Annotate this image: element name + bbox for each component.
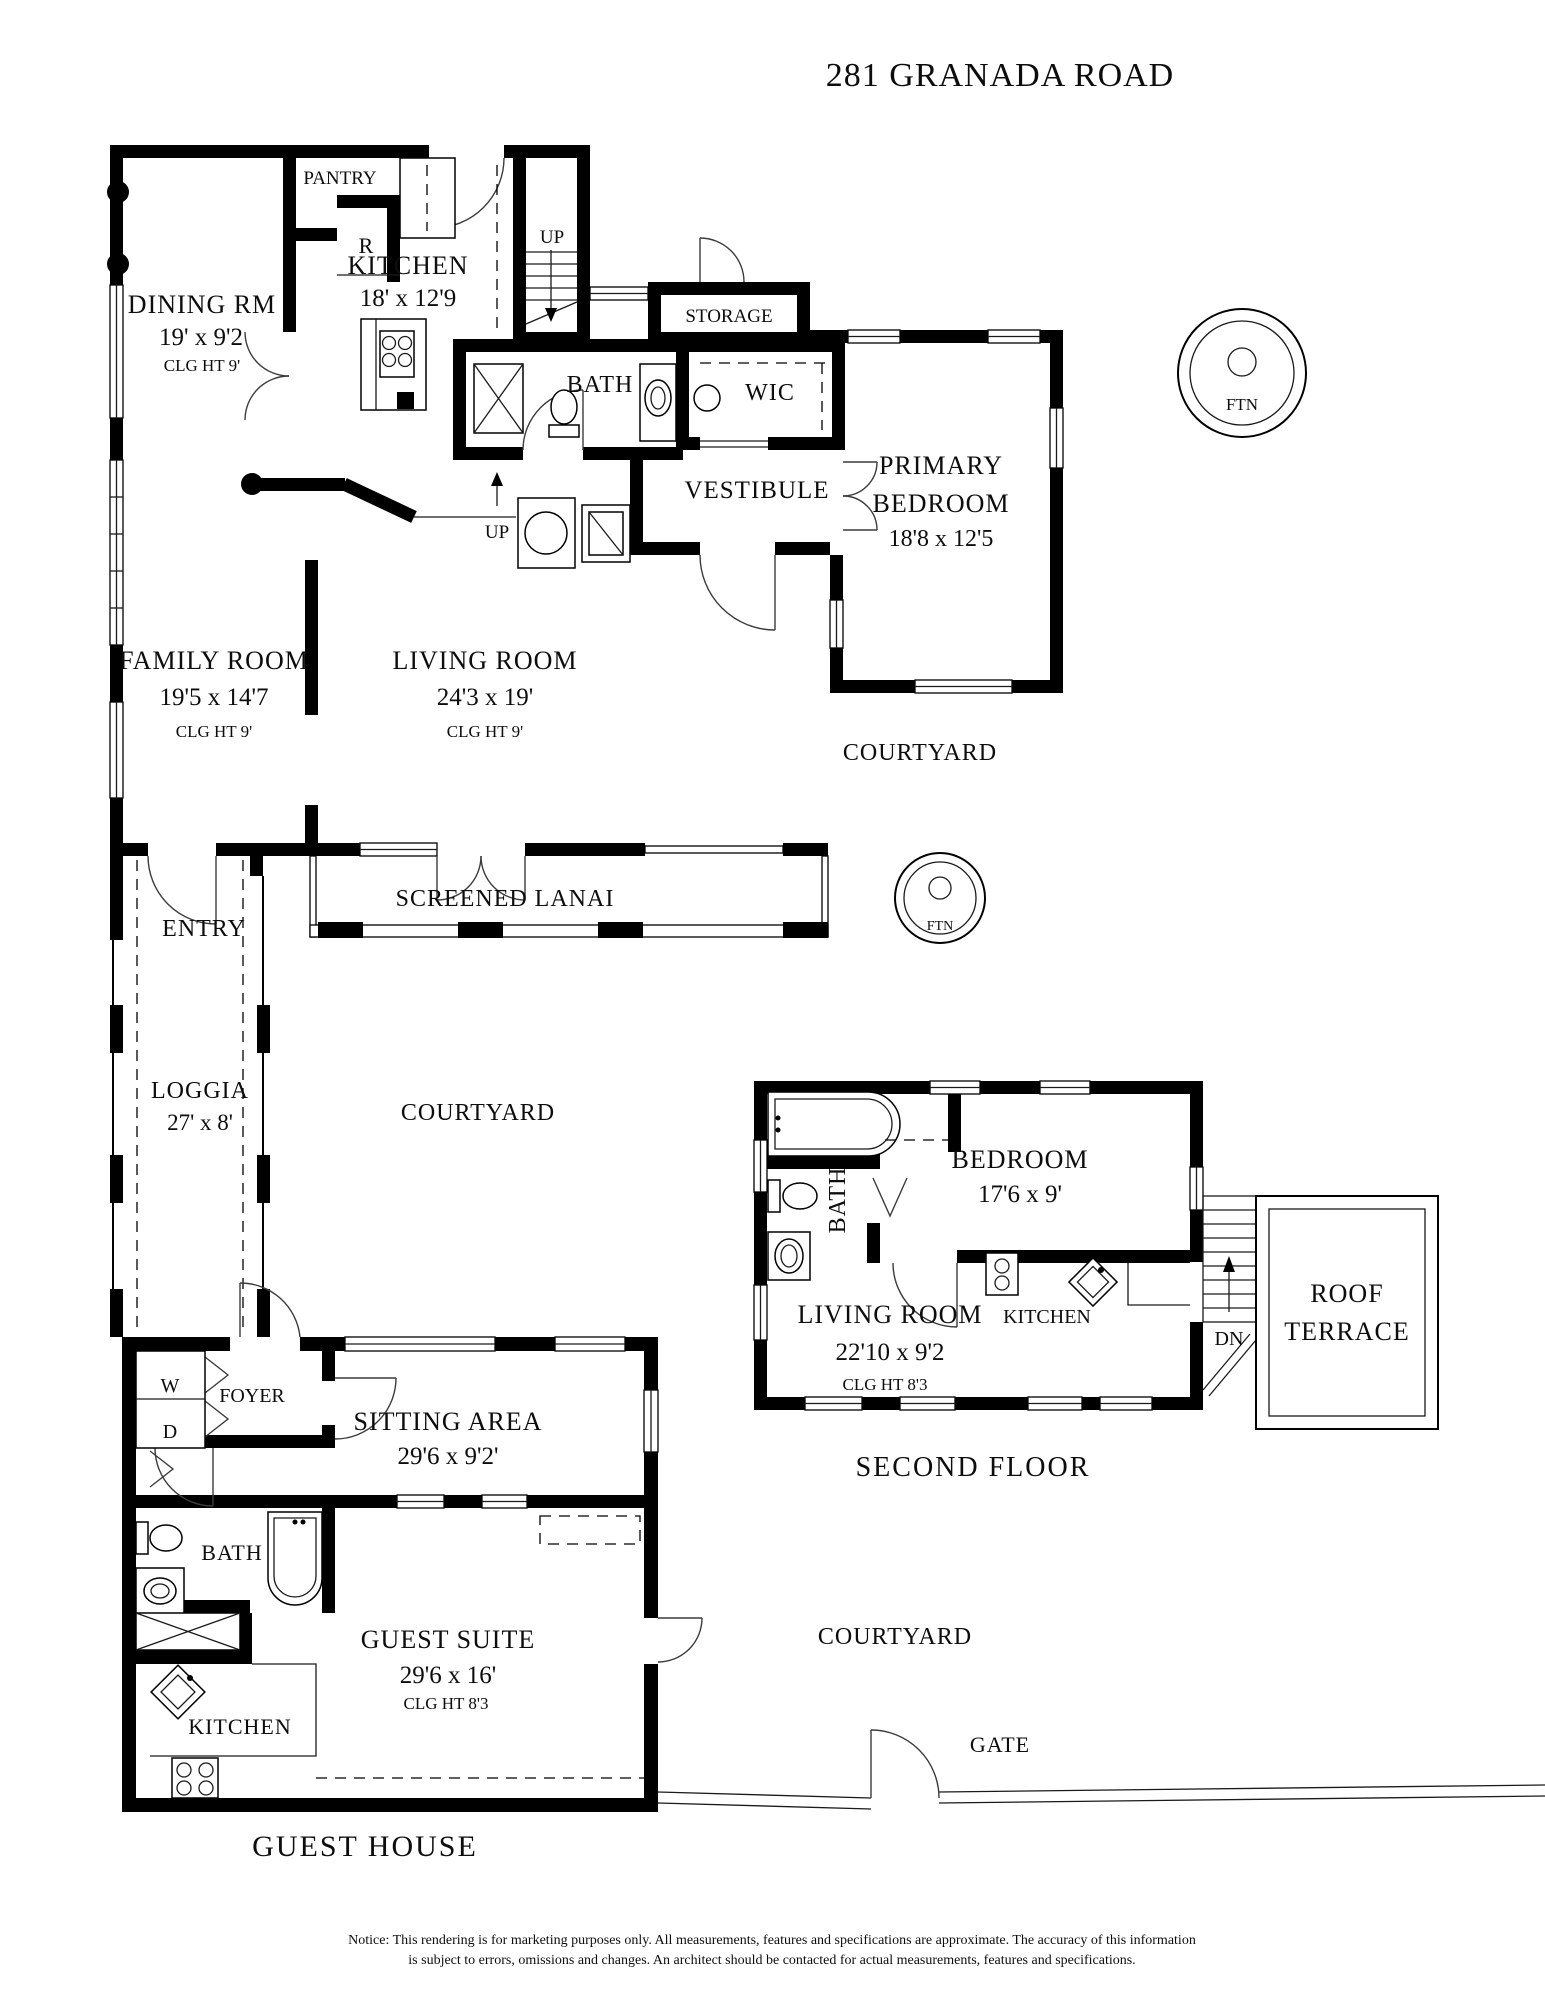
- living-room-clg: CLG HT 9': [447, 722, 523, 741]
- sitting-area-dims: 29'6 x 9'2': [397, 1443, 498, 1470]
- stairs-down-label: DN: [1215, 1328, 1244, 1350]
- primary-bedroom-label-1: PRIMARY: [879, 451, 1003, 480]
- floor-plan-svg: 281 GRANADA ROAD: [0, 0, 1545, 2000]
- guest-kitchen-label: KITCHEN: [188, 1714, 292, 1739]
- kitchen-sink-symbol: [1069, 1258, 1117, 1306]
- tub-symbol: [768, 1092, 900, 1156]
- vestibule-label: VESTIBULE: [684, 477, 829, 504]
- appliance-square-symbol: [582, 505, 630, 562]
- toilet-symbol: [136, 1522, 182, 1554]
- sitting-area-label: SITTING AREA: [354, 1407, 543, 1436]
- primary-bedroom-label-2: BEDROOM: [872, 489, 1009, 518]
- sink-symbol: [640, 364, 676, 441]
- living-room-label: LIVING ROOM: [392, 646, 577, 675]
- courtyard-lower-label: COURTYARD: [818, 1624, 972, 1650]
- courtyard-middle-label: COURTYARD: [401, 1100, 555, 1126]
- guest-suite-label: GUEST SUITE: [361, 1625, 535, 1654]
- stairs-up-symbol: [497, 165, 577, 330]
- guest-bath-label: BATH: [201, 1540, 262, 1565]
- storage-label: STORAGE: [685, 306, 772, 327]
- stairs-down-symbol: [1203, 1196, 1256, 1396]
- fountain-upper-symbol: FTN: [1178, 309, 1306, 437]
- family-room-label: FAMILY ROOM: [119, 646, 309, 675]
- notice-line-1: Notice: This rendering is for marketing …: [348, 1933, 1196, 1948]
- window-symbols: [110, 285, 1063, 856]
- stove-symbol: [986, 1253, 1018, 1295]
- stairs-mid-symbol: [414, 472, 516, 517]
- family-room-dims: 19'5 x 14'7: [159, 684, 268, 711]
- second-living-clg: CLG HT 8'3: [843, 1375, 928, 1394]
- loggia-dims: 27' x 8': [167, 1110, 233, 1135]
- floor-plan-page: 281 GRANADA ROAD: [0, 0, 1545, 2000]
- guest-house-caption: GUEST HOUSE: [252, 1830, 478, 1863]
- kitchen-island: [361, 319, 426, 410]
- entry-label: ENTRY: [162, 916, 246, 942]
- guest-suite-clg: CLG HT 8'3: [404, 1694, 489, 1713]
- guest-suite-dims: 29'6 x 16': [400, 1662, 497, 1689]
- fountain-upper-label: FTN: [1226, 395, 1258, 414]
- second-living-label: LIVING ROOM: [797, 1300, 982, 1329]
- door-symbols: [148, 158, 877, 924]
- loggia-label: LOGGIA: [151, 1078, 249, 1104]
- notice-line-2: is subject to errors, omissions and chan…: [408, 1953, 1135, 1968]
- dining-room-clg: CLG HT 9': [164, 356, 240, 375]
- stove-symbol: [380, 331, 414, 377]
- primary-bedroom-dims: 18'8 x 12'5: [889, 526, 994, 552]
- dining-room-label: DINING RM: [128, 290, 276, 319]
- toilet-symbol: [768, 1180, 817, 1212]
- wic-label: WIC: [745, 380, 795, 406]
- foyer-label: FOYER: [219, 1385, 285, 1407]
- second-bedroom-label: BEDROOM: [951, 1145, 1088, 1174]
- washer-label: W: [161, 1375, 180, 1397]
- plan-title: 281 GRANADA ROAD: [826, 57, 1174, 94]
- second-kitchen-label: KITCHEN: [1003, 1306, 1091, 1328]
- stove-symbol: [172, 1758, 218, 1798]
- guest-bath-fixtures: [136, 1512, 322, 1650]
- bath-label: BATH: [567, 372, 634, 398]
- kitchen-label: KITCHEN: [347, 251, 468, 280]
- shower-symbol: [136, 1613, 240, 1650]
- second-living-dims: 22'10 x 9'2: [835, 1339, 944, 1366]
- pantry-label: PANTRY: [303, 168, 376, 189]
- second-bedroom-dims: 17'6 x 9': [978, 1181, 1062, 1208]
- second-floor-plan: BATH BEDROOM 17'6 x 9' LIVING ROOM 22'10…: [754, 1081, 1438, 1483]
- screened-lanai-label: SCREENED LANAI: [396, 886, 615, 912]
- guest-house-plan: W D FOYER SITTING AREA 29'6 x 9'2' BATH …: [122, 1283, 702, 1863]
- fountain-lower-symbol: FTN: [895, 853, 985, 943]
- appliance-circle-symbol: [518, 498, 575, 568]
- dining-room-dims: 19' x 9'2: [159, 324, 243, 351]
- notice-text: Notice: This rendering is for marketing …: [348, 1933, 1196, 1968]
- sink-symbol: [136, 1568, 184, 1614]
- dryer-label: D: [163, 1421, 177, 1443]
- tub-symbol: [268, 1512, 322, 1605]
- gate-label: GATE: [970, 1732, 1030, 1757]
- living-room-dims: 24'3 x 19': [437, 684, 534, 711]
- roof-terrace-label-1: ROOF: [1310, 1279, 1383, 1308]
- family-room-clg: CLG HT 9': [176, 722, 252, 741]
- second-floor-caption: SECOND FLOOR: [856, 1452, 1091, 1483]
- roof-terrace-label-2: TERRACE: [1284, 1317, 1409, 1346]
- second-bath-label: BATH: [825, 1167, 851, 1234]
- stairs-up-mid-label: UP: [485, 522, 509, 543]
- sink-symbol: [768, 1232, 810, 1280]
- courtyard-upper-label: COURTYARD: [843, 740, 997, 766]
- roof-terrace: [1256, 1196, 1438, 1429]
- shower-symbol: [474, 364, 523, 433]
- stairs-up-top-label: UP: [540, 227, 564, 248]
- kitchen-sink-symbol: [151, 1665, 205, 1719]
- gate-fence: [658, 1730, 1545, 1809]
- fountain-lower-label: FTN: [927, 919, 953, 934]
- kitchen-dims: 18' x 12'9: [360, 285, 457, 312]
